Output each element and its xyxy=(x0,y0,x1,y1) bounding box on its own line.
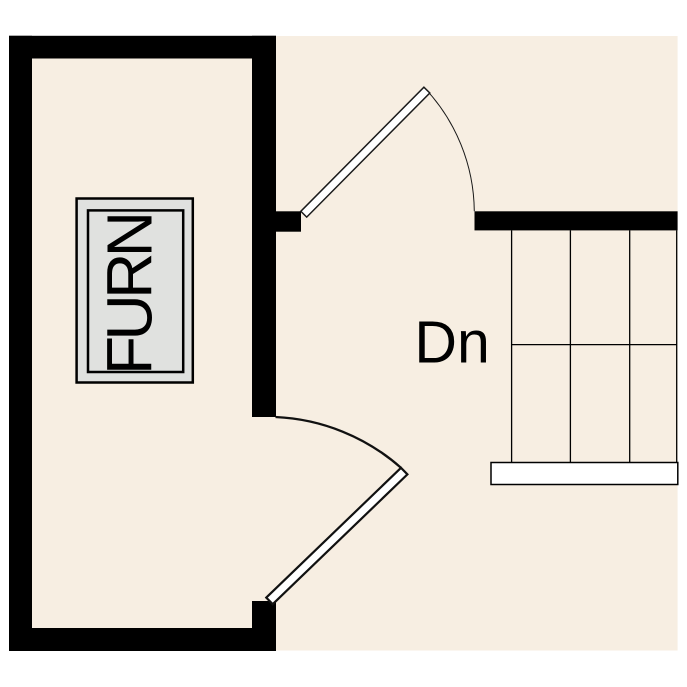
svg-text:Dn: Dn xyxy=(414,310,489,376)
svg-text:FURN: FURN xyxy=(94,211,166,375)
